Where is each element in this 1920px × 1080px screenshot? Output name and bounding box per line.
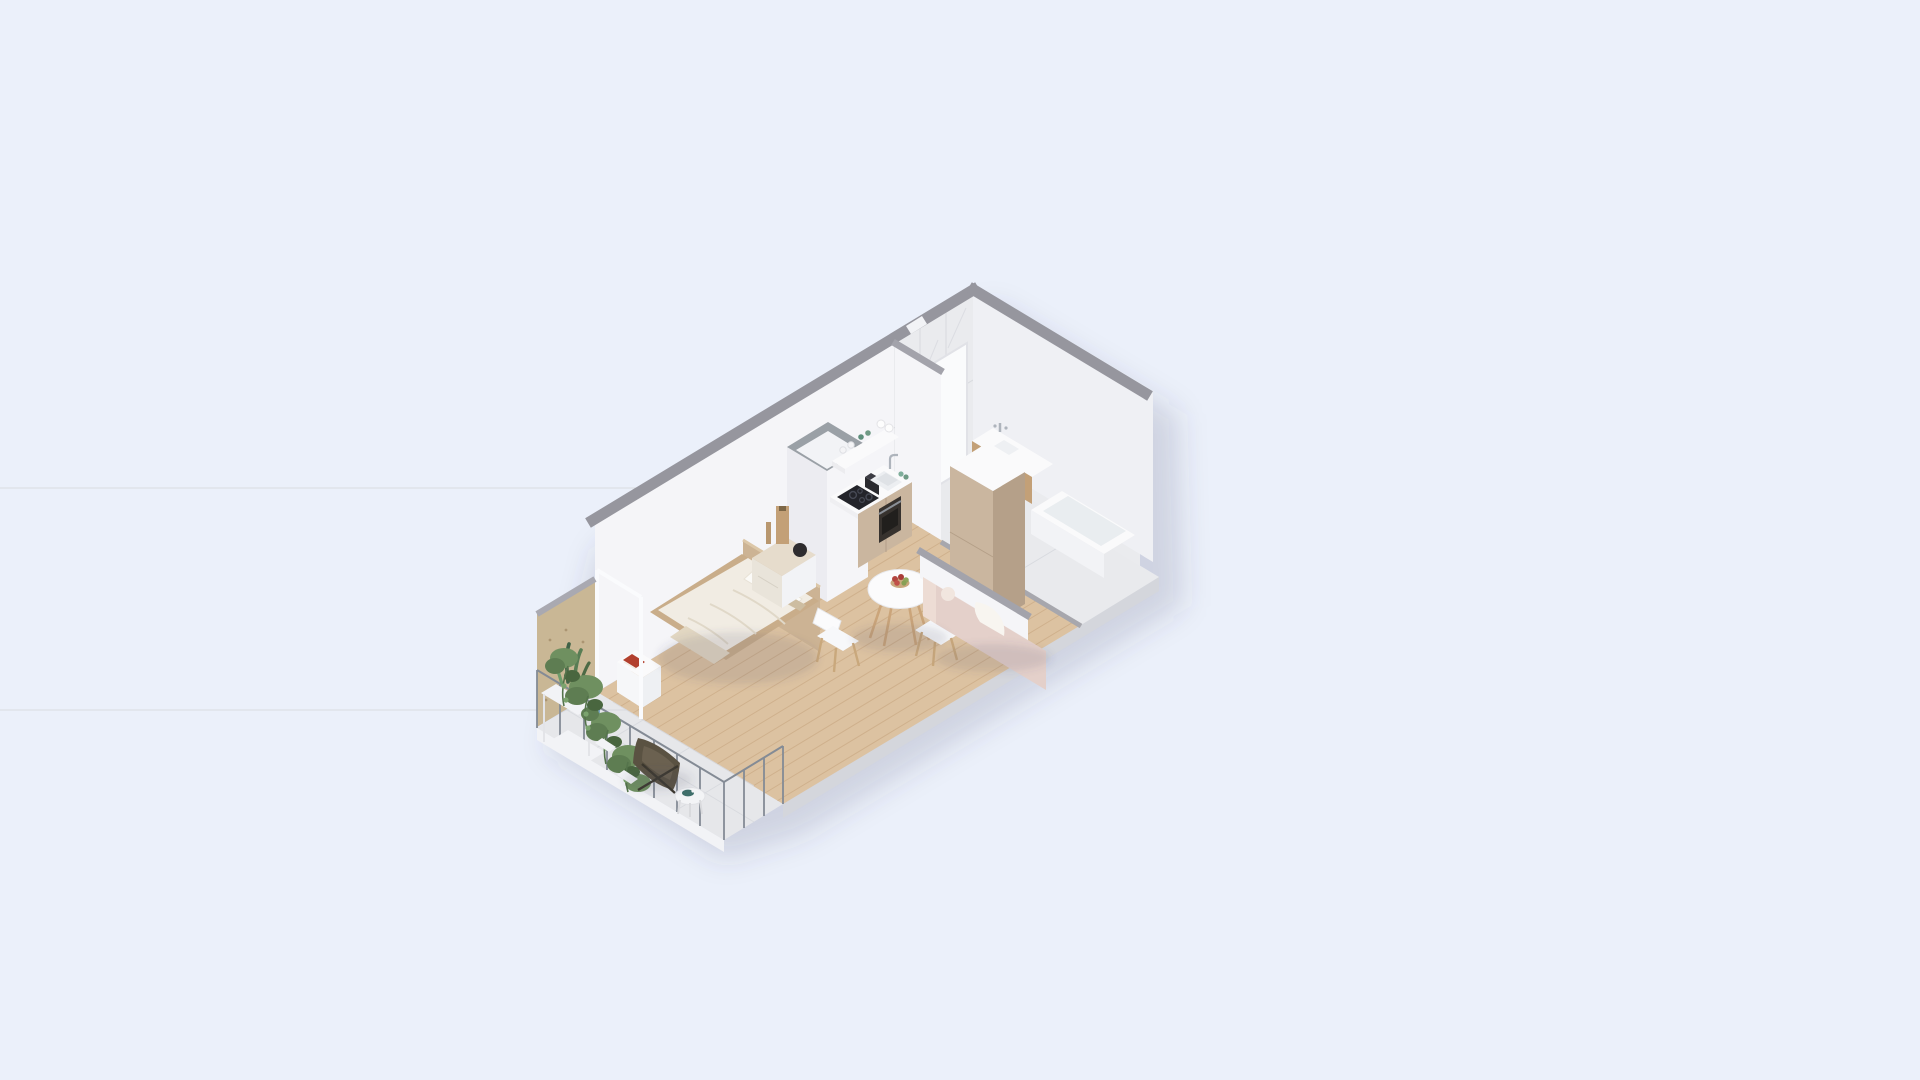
- wood-box-vase: [776, 506, 789, 544]
- sofa-cushion: [941, 587, 955, 601]
- floor-plan-render: [0, 0, 1920, 1080]
- black-sphere-vase: [793, 543, 807, 557]
- shelf-jar: [848, 442, 854, 448]
- shelf-glass: [858, 434, 864, 440]
- glass-green: [898, 471, 903, 476]
- isometric-apartment-scene: [0, 0, 1920, 1080]
- shelf-glass: [865, 430, 871, 436]
- sofa-arm: [923, 577, 936, 624]
- shelf-jar: [840, 447, 846, 453]
- glass-green: [903, 474, 908, 479]
- shelf-cup: [877, 420, 885, 428]
- bottle-vase: [766, 522, 771, 544]
- shelf-cup: [885, 424, 893, 432]
